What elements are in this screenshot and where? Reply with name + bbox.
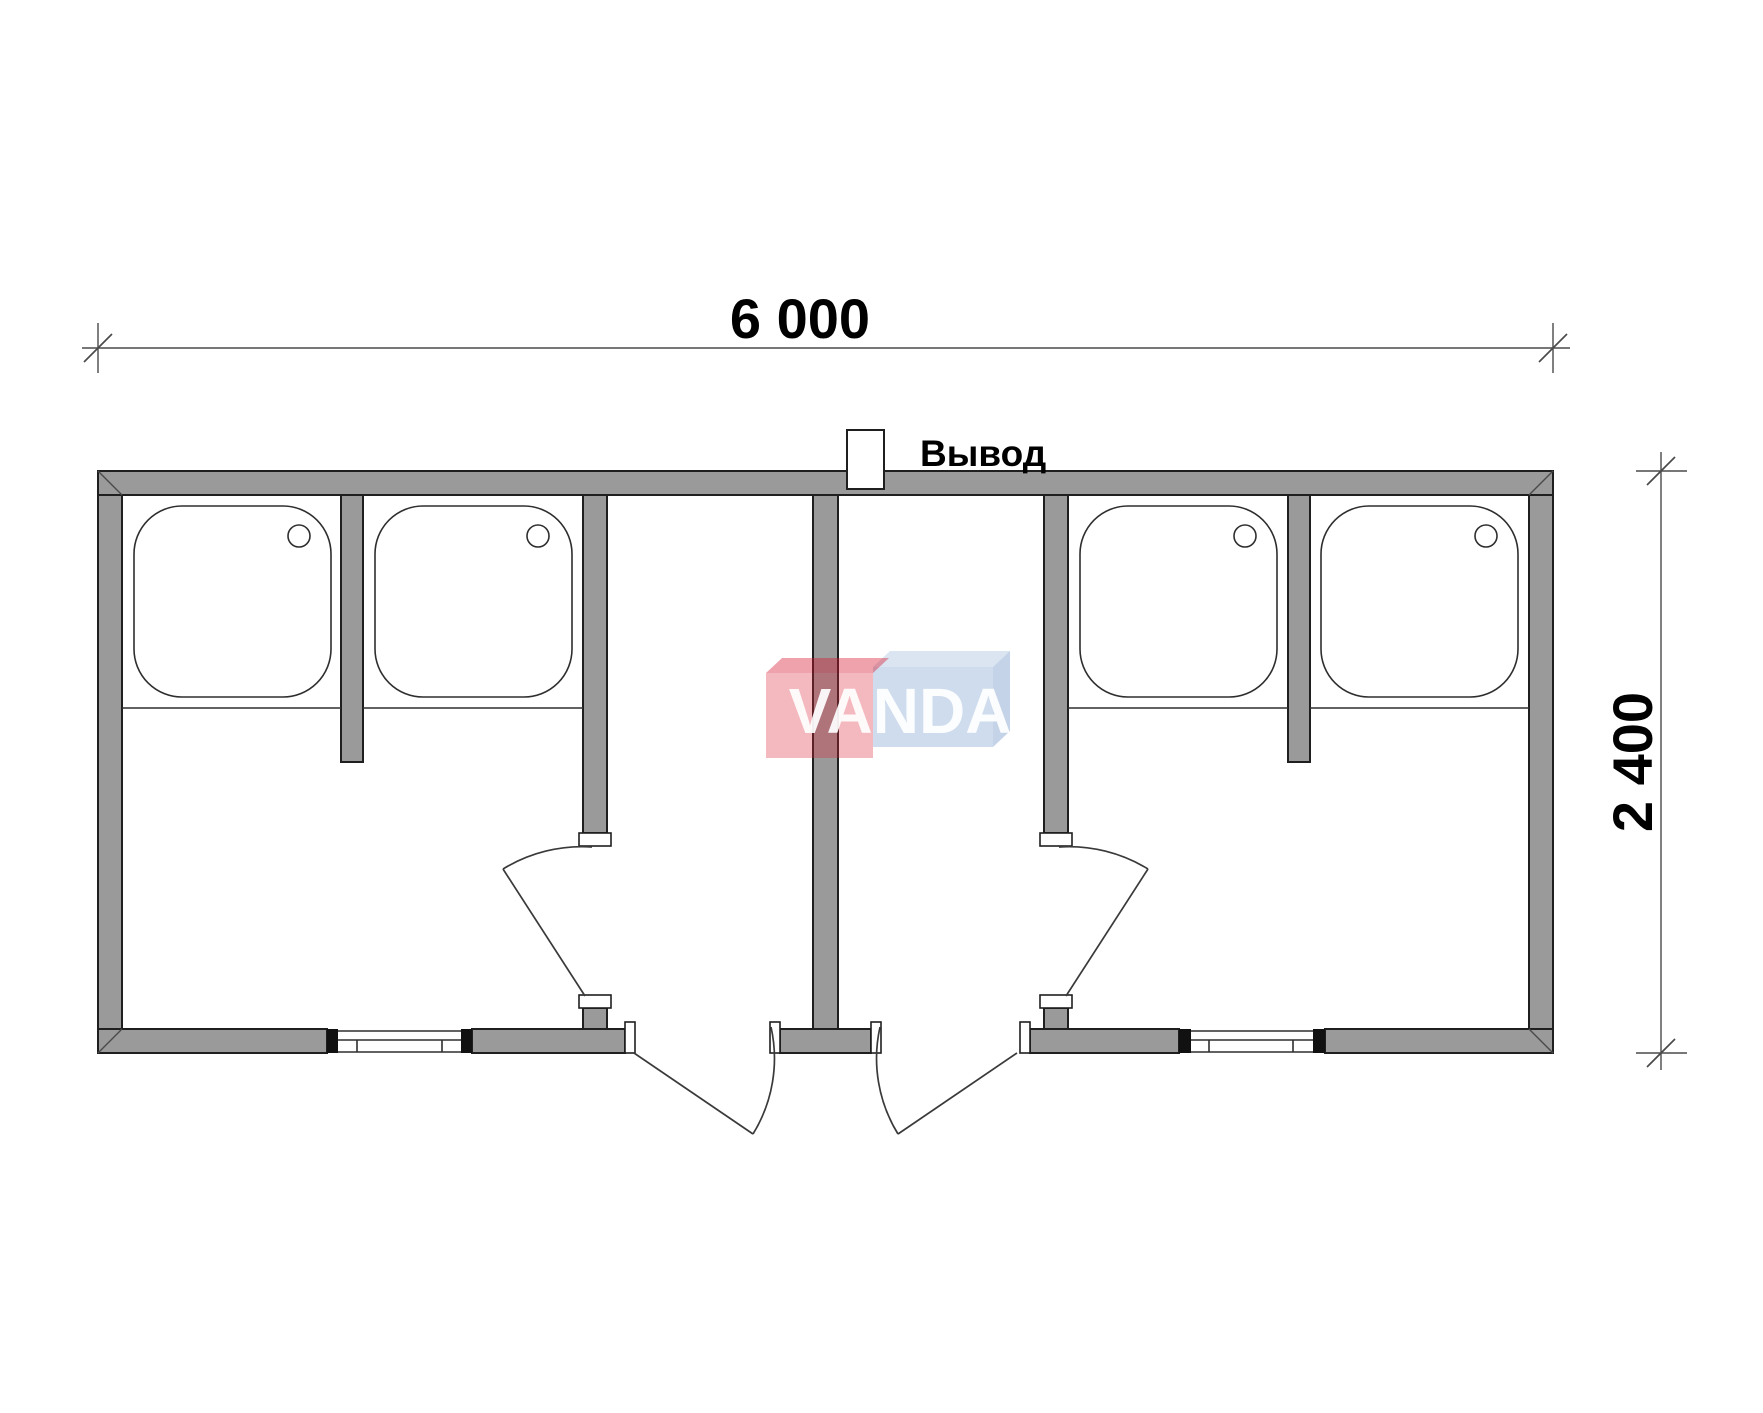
shower-tray [375, 506, 572, 697]
wall-bottom-segment [780, 1029, 871, 1053]
window-end-cap [1313, 1029, 1325, 1053]
dimension-top: 6 000 [82, 287, 1570, 373]
jamb [579, 833, 611, 846]
wall-bottom-segment [1325, 1029, 1553, 1053]
door-leaf [1066, 869, 1148, 996]
partition-left-stub [583, 1008, 607, 1029]
jamb [579, 995, 611, 1008]
wall-top [98, 471, 1553, 495]
window-right [1179, 1029, 1325, 1053]
door-leaf [634, 1053, 753, 1134]
outlet-box [847, 430, 884, 489]
door-leaf [503, 869, 585, 996]
jamb [1040, 833, 1072, 846]
shower-divider-left [341, 495, 363, 762]
jamb [625, 1022, 635, 1053]
partition-left-upper [583, 495, 607, 833]
window-end-cap [327, 1029, 338, 1053]
shower-tray [134, 506, 331, 697]
drain-icon [527, 525, 549, 547]
window-end-cap [461, 1029, 472, 1053]
floor-plan-drawing: 6 000 2 400 [0, 0, 1763, 1413]
drain-icon [288, 525, 310, 547]
jamb [1020, 1022, 1030, 1053]
window-end-cap [1179, 1029, 1191, 1053]
wall-bottom-segment [472, 1029, 625, 1053]
logo-text: VANDA [789, 675, 1012, 747]
dimension-width-label: 6 000 [730, 287, 870, 350]
dimension-height-label: 2 400 [1601, 692, 1664, 832]
partition-central [813, 495, 838, 1029]
wall-bottom-segment [98, 1029, 327, 1053]
floor-plan-canvas: 6 000 2 400 [0, 0, 1763, 1413]
wall-left [98, 495, 122, 1029]
drain-icon [1234, 525, 1256, 547]
jamb [1040, 995, 1072, 1008]
wall-bottom-segment [1030, 1029, 1179, 1053]
outlet-label: Вывод [920, 433, 1046, 474]
jamb [871, 1022, 881, 1053]
partition-right-upper [1044, 495, 1068, 833]
window-left [327, 1029, 472, 1053]
door-leaf [898, 1053, 1017, 1134]
vanda-logo-watermark: VANDA [766, 651, 1011, 758]
door-swing-arc [503, 847, 592, 869]
shower-divider-right [1288, 495, 1310, 762]
dimension-right: 2 400 [1601, 452, 1687, 1070]
door-swing-arc [1059, 847, 1148, 869]
shower-tray [1080, 506, 1277, 697]
drain-icon [1475, 525, 1497, 547]
partition-right-stub [1044, 1008, 1068, 1029]
interior-partitions [341, 495, 1310, 1029]
jamb [770, 1022, 780, 1053]
logo-blue-box-top [873, 651, 1010, 667]
wall-right [1529, 495, 1553, 1029]
logo-red-box-top [766, 658, 889, 673]
shower-tray [1321, 506, 1518, 697]
